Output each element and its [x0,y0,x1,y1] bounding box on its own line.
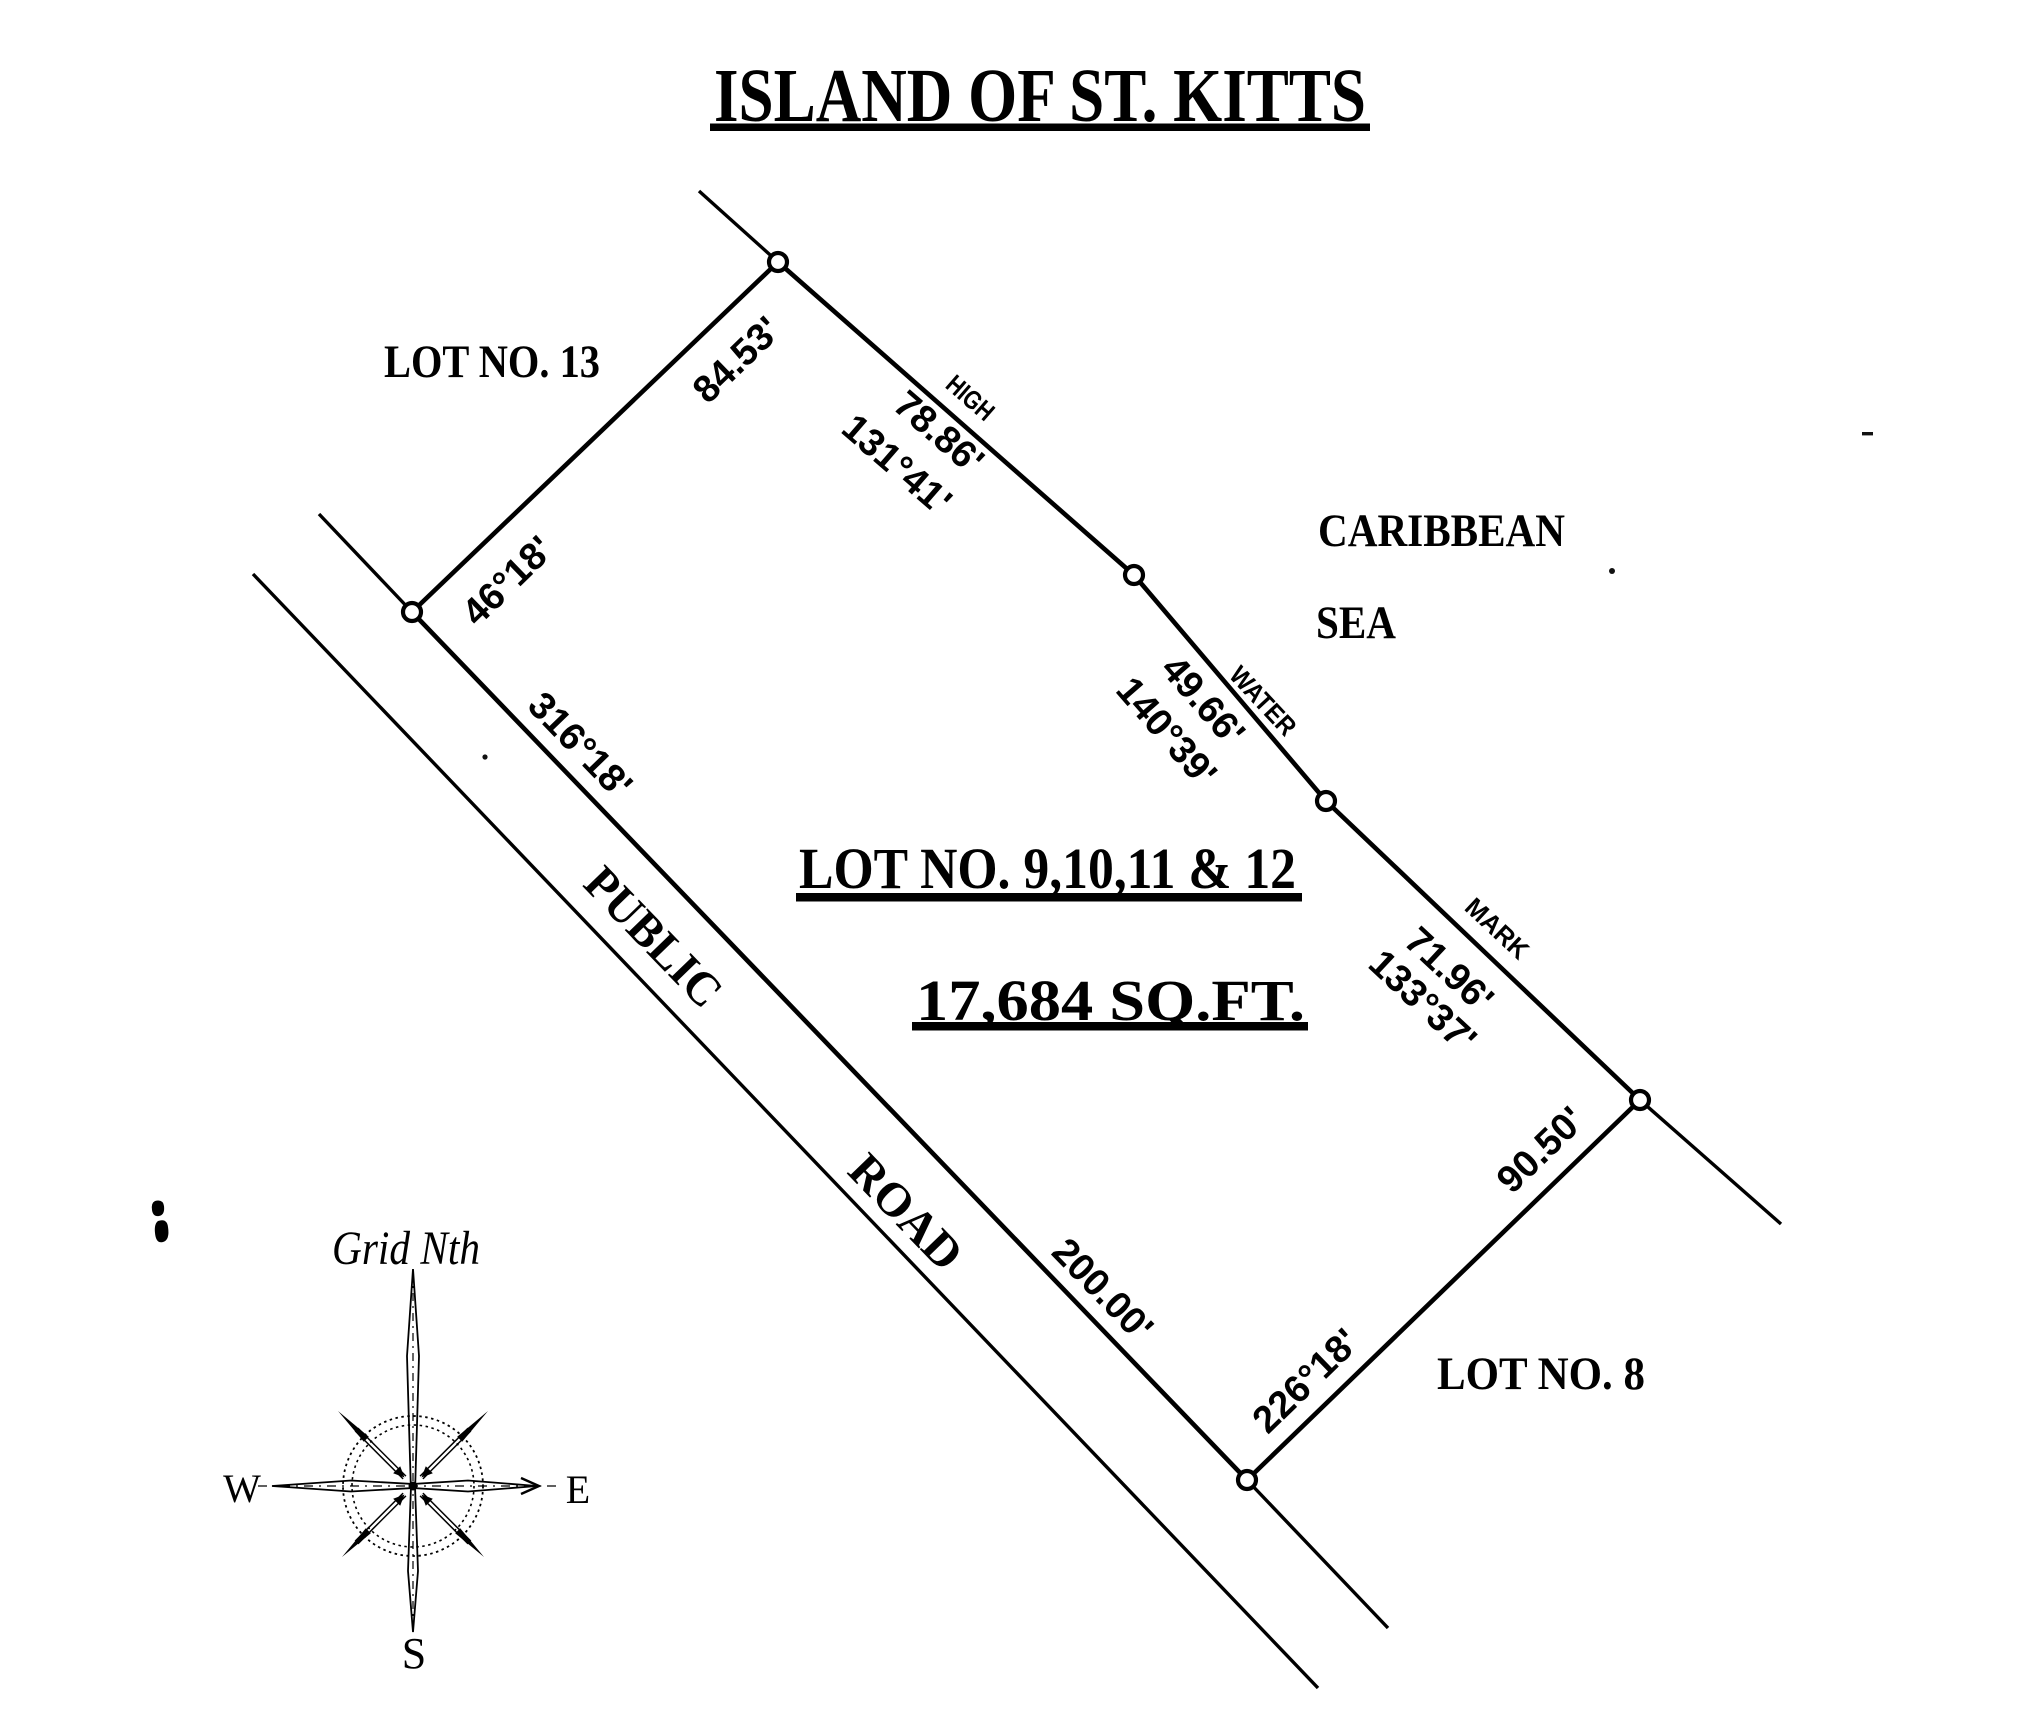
svg-text:Grid Nth: Grid Nth [332,1222,480,1275]
svg-text:MARK: MARK [1459,892,1535,966]
svg-text:E: E [566,1467,590,1512]
svg-text:CARIBBEAN: CARIBBEAN [1318,505,1565,557]
svg-text:46°18': 46°18' [454,528,561,634]
svg-text:ROAD: ROAD [838,1143,973,1281]
svg-text:W: W [223,1466,261,1511]
svg-text:90.50': 90.50' [1489,1099,1593,1202]
svg-text:LOT NO. 13: LOT NO. 13 [384,336,600,388]
svg-text:SEA: SEA [1316,597,1396,649]
svg-text:LOT NO. 9,10,11 & 12: LOT NO. 9,10,11 & 12 [799,836,1296,901]
svg-text:LOT NO. 8: LOT NO. 8 [1437,1348,1645,1400]
svg-text:S: S [402,1629,426,1678]
svg-text:84.53': 84.53' [685,309,789,412]
